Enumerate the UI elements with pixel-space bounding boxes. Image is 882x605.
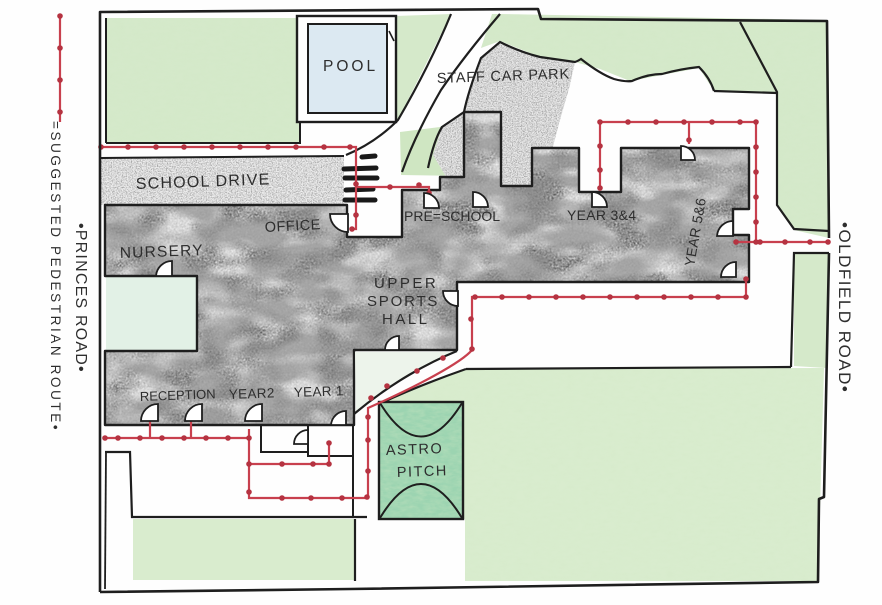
svg-text:PRE=SCHOOL: PRE=SCHOOL <box>404 208 500 224</box>
svg-text:SPORTS: SPORTS <box>367 293 439 310</box>
svg-text:RECEPTION: RECEPTION <box>140 386 216 404</box>
svg-text:NURSERY: NURSERY <box>120 242 204 262</box>
svg-text:YEAR 3&4: YEAR 3&4 <box>567 207 636 223</box>
svg-text:•PRINCES ROAD•: •PRINCES ROAD• <box>72 223 89 373</box>
svg-text:=SUGGESTED PEDESTRIAN ROUTE•: =SUGGESTED PEDESTRIAN ROUTE• <box>48 121 63 432</box>
svg-text:PITCH: PITCH <box>397 463 449 481</box>
svg-text:YEAR2: YEAR2 <box>229 385 275 402</box>
svg-text:YEAR 1: YEAR 1 <box>294 383 344 400</box>
svg-text:ASTRO: ASTRO <box>386 441 444 459</box>
svg-text:UPPER: UPPER <box>374 275 438 292</box>
svg-text:POOL: POOL <box>323 58 378 75</box>
svg-text:HALL: HALL <box>382 311 430 328</box>
svg-text:•OLDFIELD ROAD•: •OLDFIELD ROAD• <box>835 222 854 393</box>
svg-text:OFFICE: OFFICE <box>264 217 321 236</box>
